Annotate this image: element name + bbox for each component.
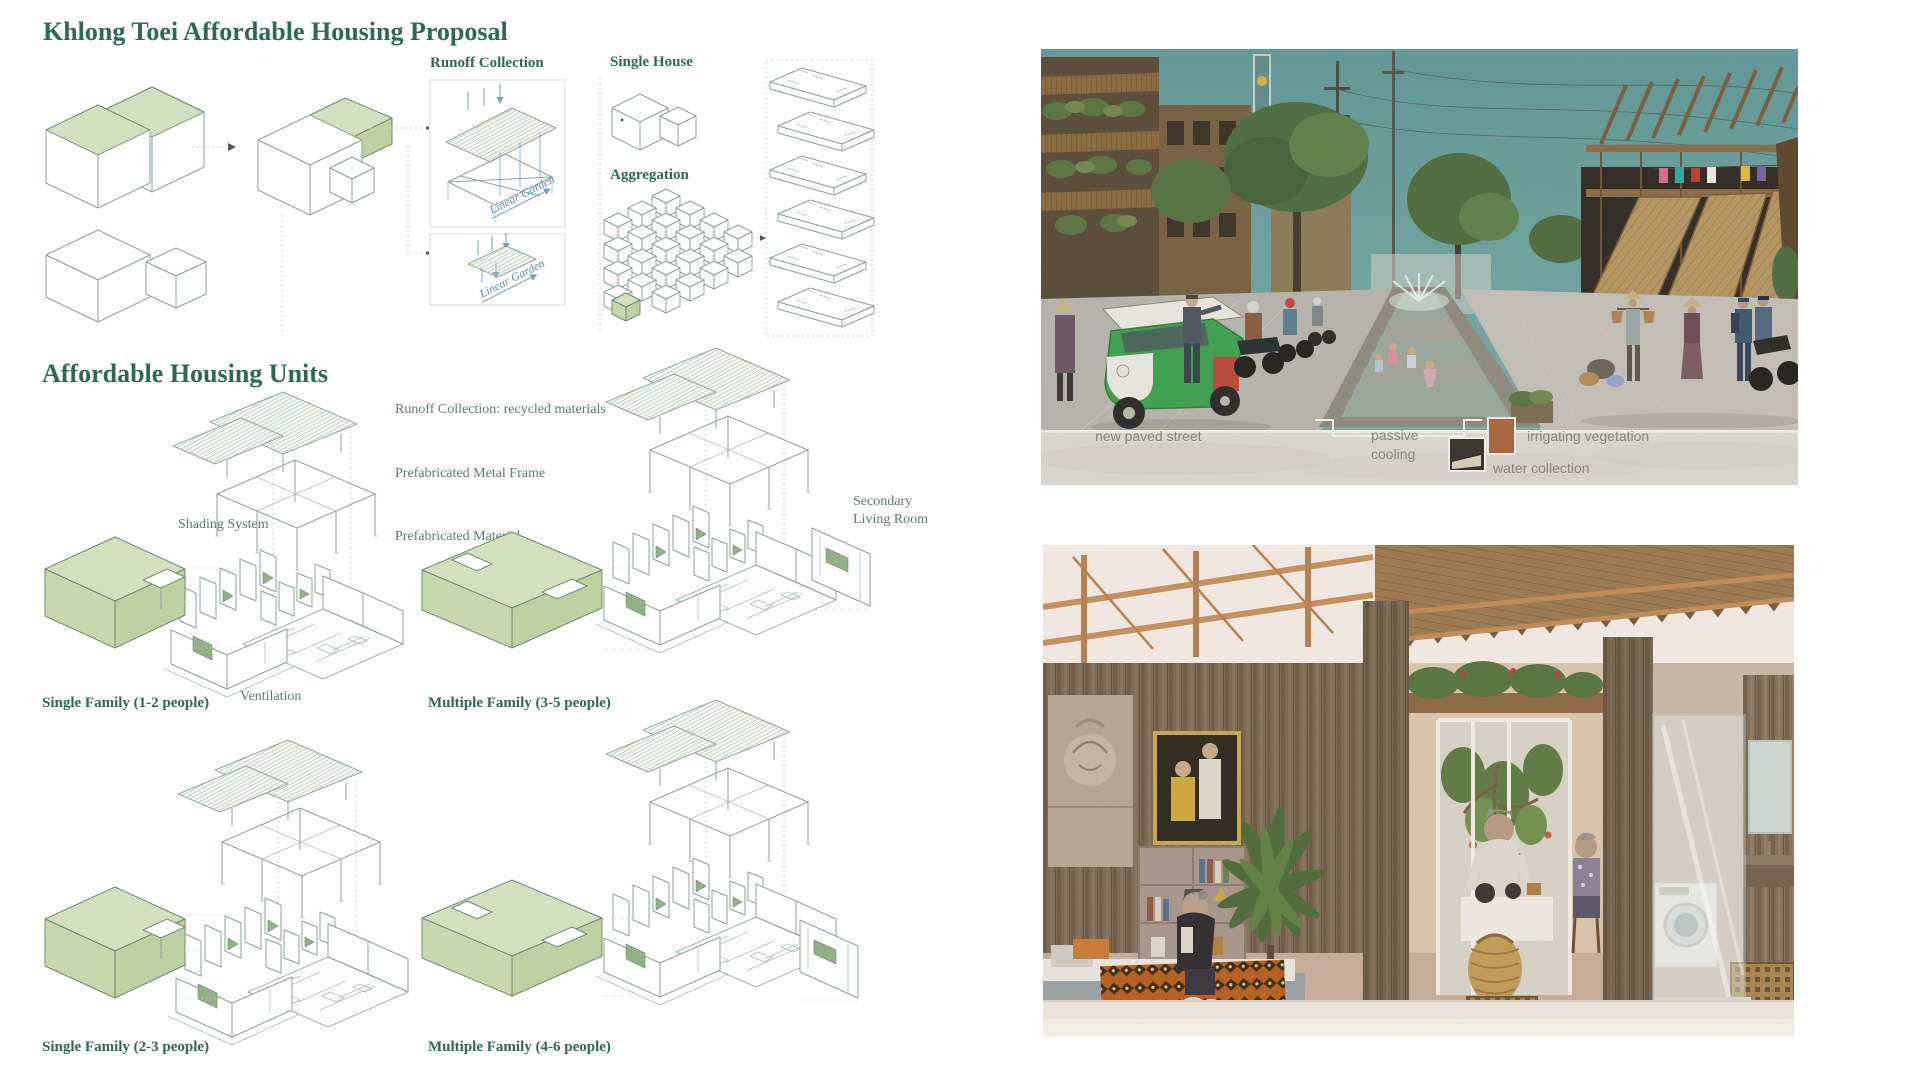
diagram-panel: Khlong Toei Affordable Housing Proposal …	[0, 0, 1010, 1080]
aggregation-stack	[748, 60, 874, 336]
callout-secondary-2: Living Room	[853, 512, 928, 527]
runoff-collection-diagram: Linear Garden	[430, 80, 565, 227]
unit-multiple-family-large	[422, 700, 860, 1005]
board-title: Khlong Toei Affordable Housing Proposal	[43, 17, 508, 46]
callout-frame: Prefabricated Metal Frame	[395, 466, 545, 481]
street-render: new paved street passive cooling irrigat…	[1041, 49, 1798, 485]
unit-multiple-family-small	[422, 348, 870, 653]
unit-type-4: Multiple Family (4-6 people)	[428, 1039, 611, 1055]
presentation-board: Khlong Toei Affordable Housing Proposal …	[0, 0, 1920, 1080]
interior-render	[1043, 545, 1794, 1037]
callout-secondary-1: Secondary	[853, 494, 912, 509]
unit-type-3: Single Family (2-3 people)	[42, 1039, 209, 1055]
aggregation-cluster	[604, 189, 752, 321]
photo-grain-2	[1043, 545, 1794, 1037]
single-house-label: Single House	[610, 54, 693, 70]
modified-house-axon	[258, 98, 392, 215]
callout-ventilation: Ventilation	[240, 689, 301, 704]
linear-garden-diagram: Linear Garden	[430, 233, 565, 305]
units-heading: Affordable Housing Units	[42, 359, 328, 388]
single-house-icon	[612, 94, 696, 150]
callout-runoff: Runoff Collection: recycled materials	[395, 402, 606, 417]
unit-single-family-small	[45, 392, 403, 697]
photo-grain	[1041, 49, 1798, 485]
aggregation-label: Aggregation	[610, 167, 690, 183]
existing-house-axon	[46, 87, 204, 208]
unit-single-family-large	[45, 740, 408, 1045]
unit-type-1: Single Family (1-2 people)	[42, 695, 209, 711]
house-footprint-axon	[46, 230, 206, 322]
callout-shading: Shading System	[178, 517, 269, 532]
unit-type-2: Multiple Family (3-5 people)	[428, 695, 611, 711]
runoff-collection-label: Runoff Collection	[430, 55, 544, 71]
